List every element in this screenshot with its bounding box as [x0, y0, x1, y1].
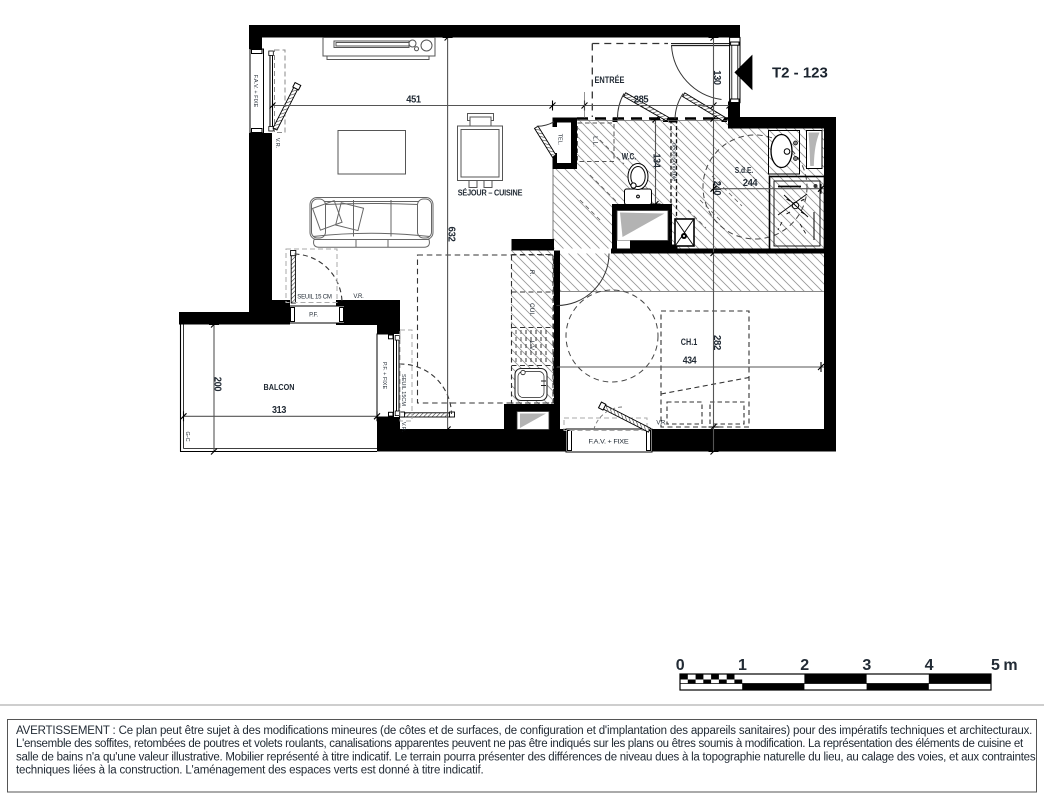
svg-text:V.R.: V.R.: [400, 422, 406, 433]
svg-text:1: 1: [738, 657, 747, 674]
svg-text:2: 2: [800, 657, 809, 674]
svg-text:V.R.: V.R.: [656, 421, 667, 427]
svg-text:130: 130: [711, 70, 723, 85]
svg-text:T2 - 123: T2 - 123: [772, 65, 828, 82]
svg-text:L'ensemble des soffites, retom: L'ensemble des soffites, retombées de po…: [16, 738, 1024, 750]
svg-text:5 m: 5 m: [991, 657, 1017, 674]
svg-text:AVERTISSEMENT : Ce plan peut ê: AVERTISSEMENT : Ce plan peut être sujet …: [16, 725, 1032, 737]
svg-text:244: 244: [743, 177, 758, 189]
svg-text:P.F.: P.F.: [309, 313, 318, 319]
svg-text:TEL.: TEL.: [557, 134, 563, 146]
svg-text:L.L.: L.L.: [592, 136, 599, 147]
svg-text:632: 632: [446, 227, 458, 243]
svg-text:V.R.: V.R.: [353, 294, 364, 300]
svg-text:285: 285: [634, 94, 649, 106]
svg-text:W.C.: W.C.: [622, 152, 637, 162]
svg-text:S.d.E.: S.d.E.: [735, 165, 754, 175]
svg-text:F.A.V. + FIXE: F.A.V. + FIXE: [589, 440, 629, 446]
svg-text:SEUIL 15 CM: SEUIL 15 CM: [297, 295, 332, 301]
svg-text:0: 0: [676, 657, 685, 674]
svg-text:V.R.: V.R.: [274, 138, 280, 149]
svg-text:salle de bains n'a qu'une vale: salle de bains n'a qu'une valeur illustr…: [16, 751, 1036, 763]
svg-text:451: 451: [406, 94, 421, 106]
svg-text:434: 434: [683, 355, 697, 367]
svg-text:134: 134: [651, 154, 663, 168]
svg-text:BALCON: BALCON: [264, 382, 295, 392]
svg-text:R.: R.: [528, 270, 535, 277]
svg-text:CUI.: CUI.: [528, 303, 535, 316]
svg-text:ENTRÉE: ENTRÉE: [595, 75, 625, 85]
svg-text:282: 282: [711, 335, 723, 351]
svg-text:L.V.: L.V.: [528, 341, 535, 352]
svg-text:SÉJOUR – CUISINE: SÉJOUR – CUISINE: [458, 189, 523, 198]
svg-text:techniques liées à la construc: techniques liées à la construction. L'am…: [16, 765, 484, 777]
svg-text:4: 4: [925, 657, 934, 674]
svg-text:G-C: G-C: [184, 431, 190, 441]
svg-text:CH.1: CH.1: [681, 337, 698, 348]
svg-text:P.F. + FIXE: P.F. + FIXE: [381, 362, 387, 390]
svg-text:200: 200: [212, 377, 224, 392]
svg-text:SEUIL 15CM: SEUIL 15CM: [400, 374, 406, 406]
svg-text:313: 313: [272, 404, 286, 416]
svg-text:F.A.V. + FIXE: F.A.V. + FIXE: [252, 75, 258, 108]
svg-text:décloisonnable: décloisonnable: [671, 143, 677, 182]
svg-text:3: 3: [862, 657, 871, 674]
